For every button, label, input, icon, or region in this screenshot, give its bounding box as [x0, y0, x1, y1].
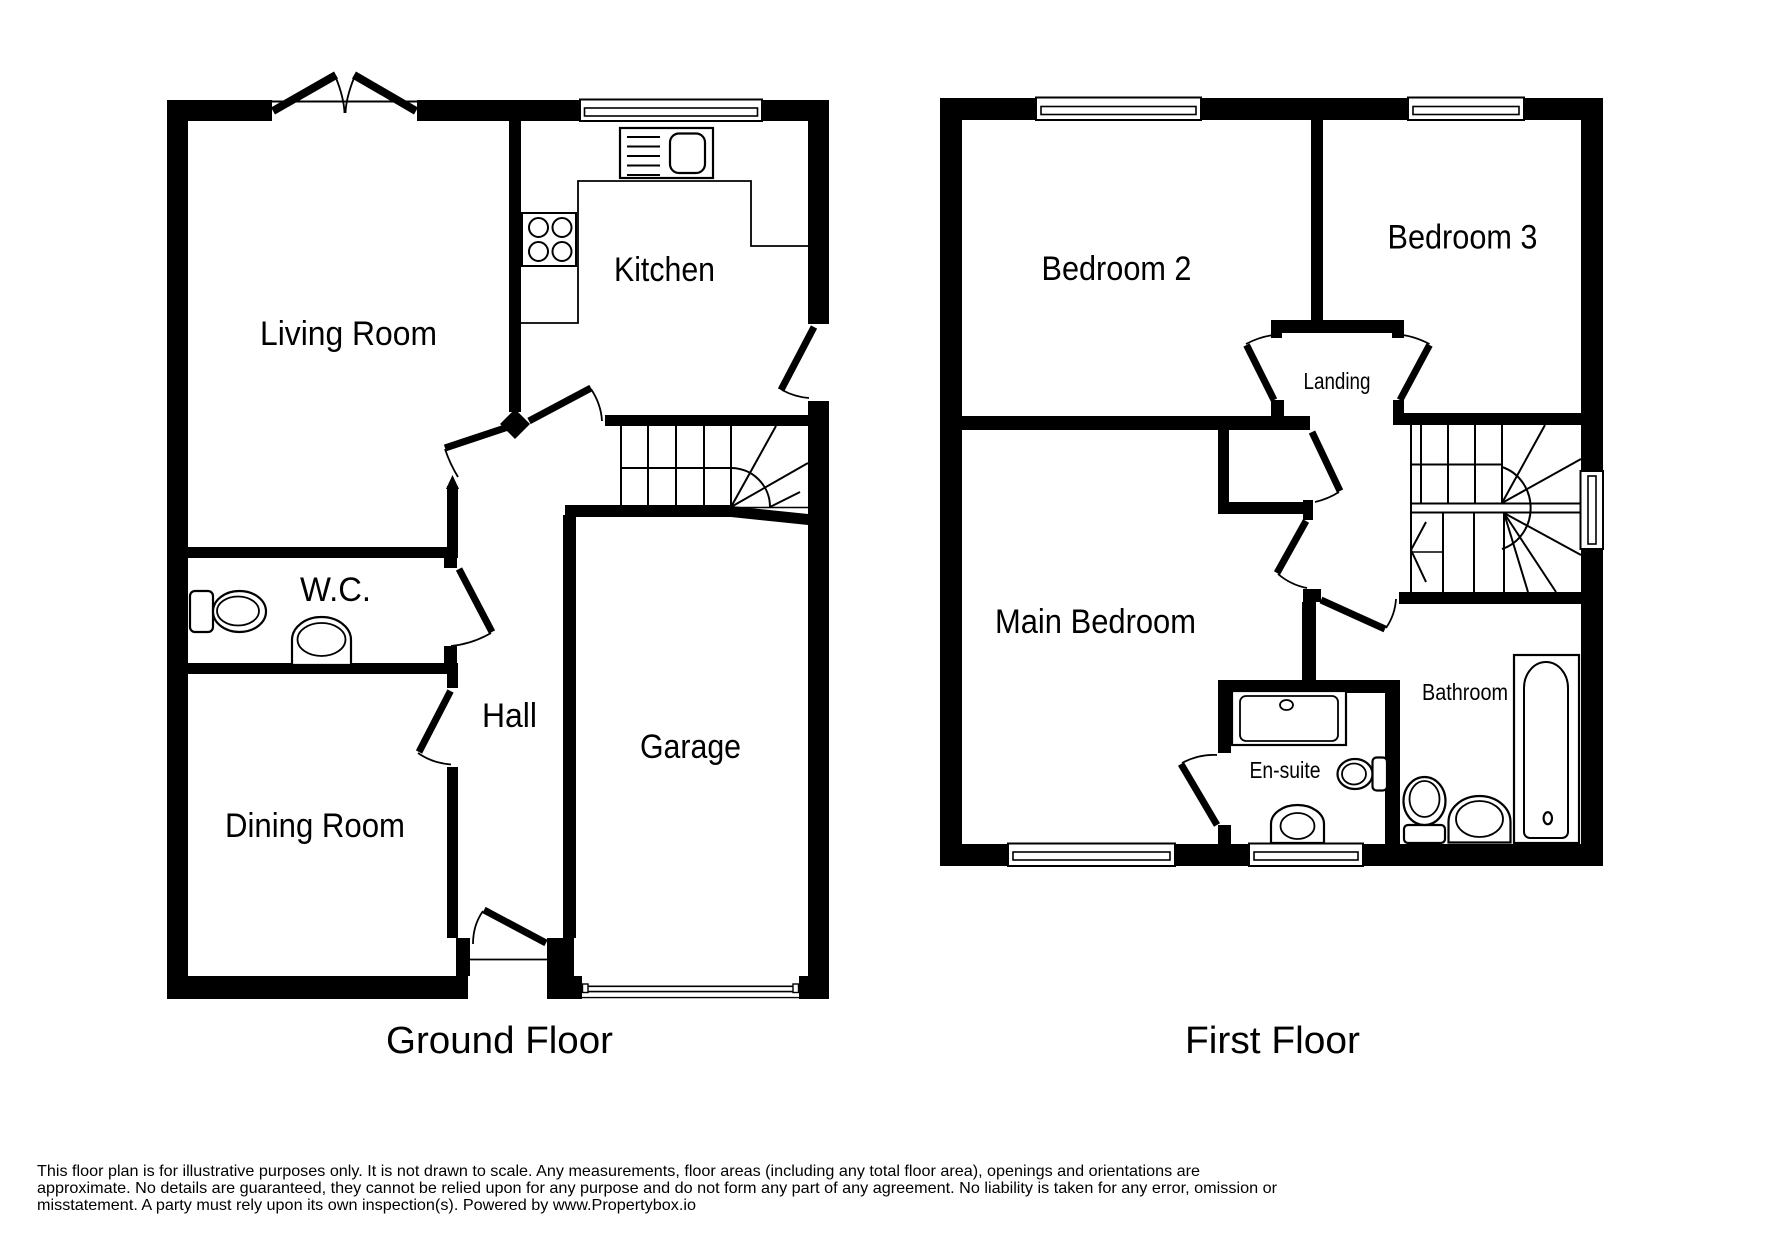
- svg-text:Ground Floor: Ground Floor: [386, 1020, 613, 1062]
- svg-text:Landing: Landing: [1304, 368, 1371, 394]
- svg-text:Kitchen: Kitchen: [614, 251, 715, 289]
- svg-text:Bathroom: Bathroom: [1422, 679, 1508, 705]
- svg-text:Dining Room: Dining Room: [225, 807, 405, 845]
- svg-text:Bedroom 3: Bedroom 3: [1388, 219, 1538, 257]
- svg-text:Garage: Garage: [640, 728, 741, 766]
- svg-text:Main Bedroom: Main Bedroom: [995, 603, 1196, 641]
- svg-text:approximate. No details are gu: approximate. No details are guaranteed, …: [37, 1180, 1278, 1197]
- svg-text:First Floor: First Floor: [1185, 1020, 1360, 1062]
- svg-text:This floor plan is for illustr: This floor plan is for illustrative purp…: [37, 1163, 1200, 1180]
- svg-text:misstatement. A party must rel: misstatement. A party must rely upon its…: [37, 1197, 696, 1214]
- svg-text:Hall: Hall: [482, 697, 537, 735]
- svg-text:Bedroom 2: Bedroom 2: [1042, 250, 1192, 288]
- svg-text:W.C.: W.C.: [300, 571, 371, 609]
- svg-text:Living Room: Living Room: [260, 315, 437, 353]
- svg-text:En-suite: En-suite: [1250, 757, 1321, 783]
